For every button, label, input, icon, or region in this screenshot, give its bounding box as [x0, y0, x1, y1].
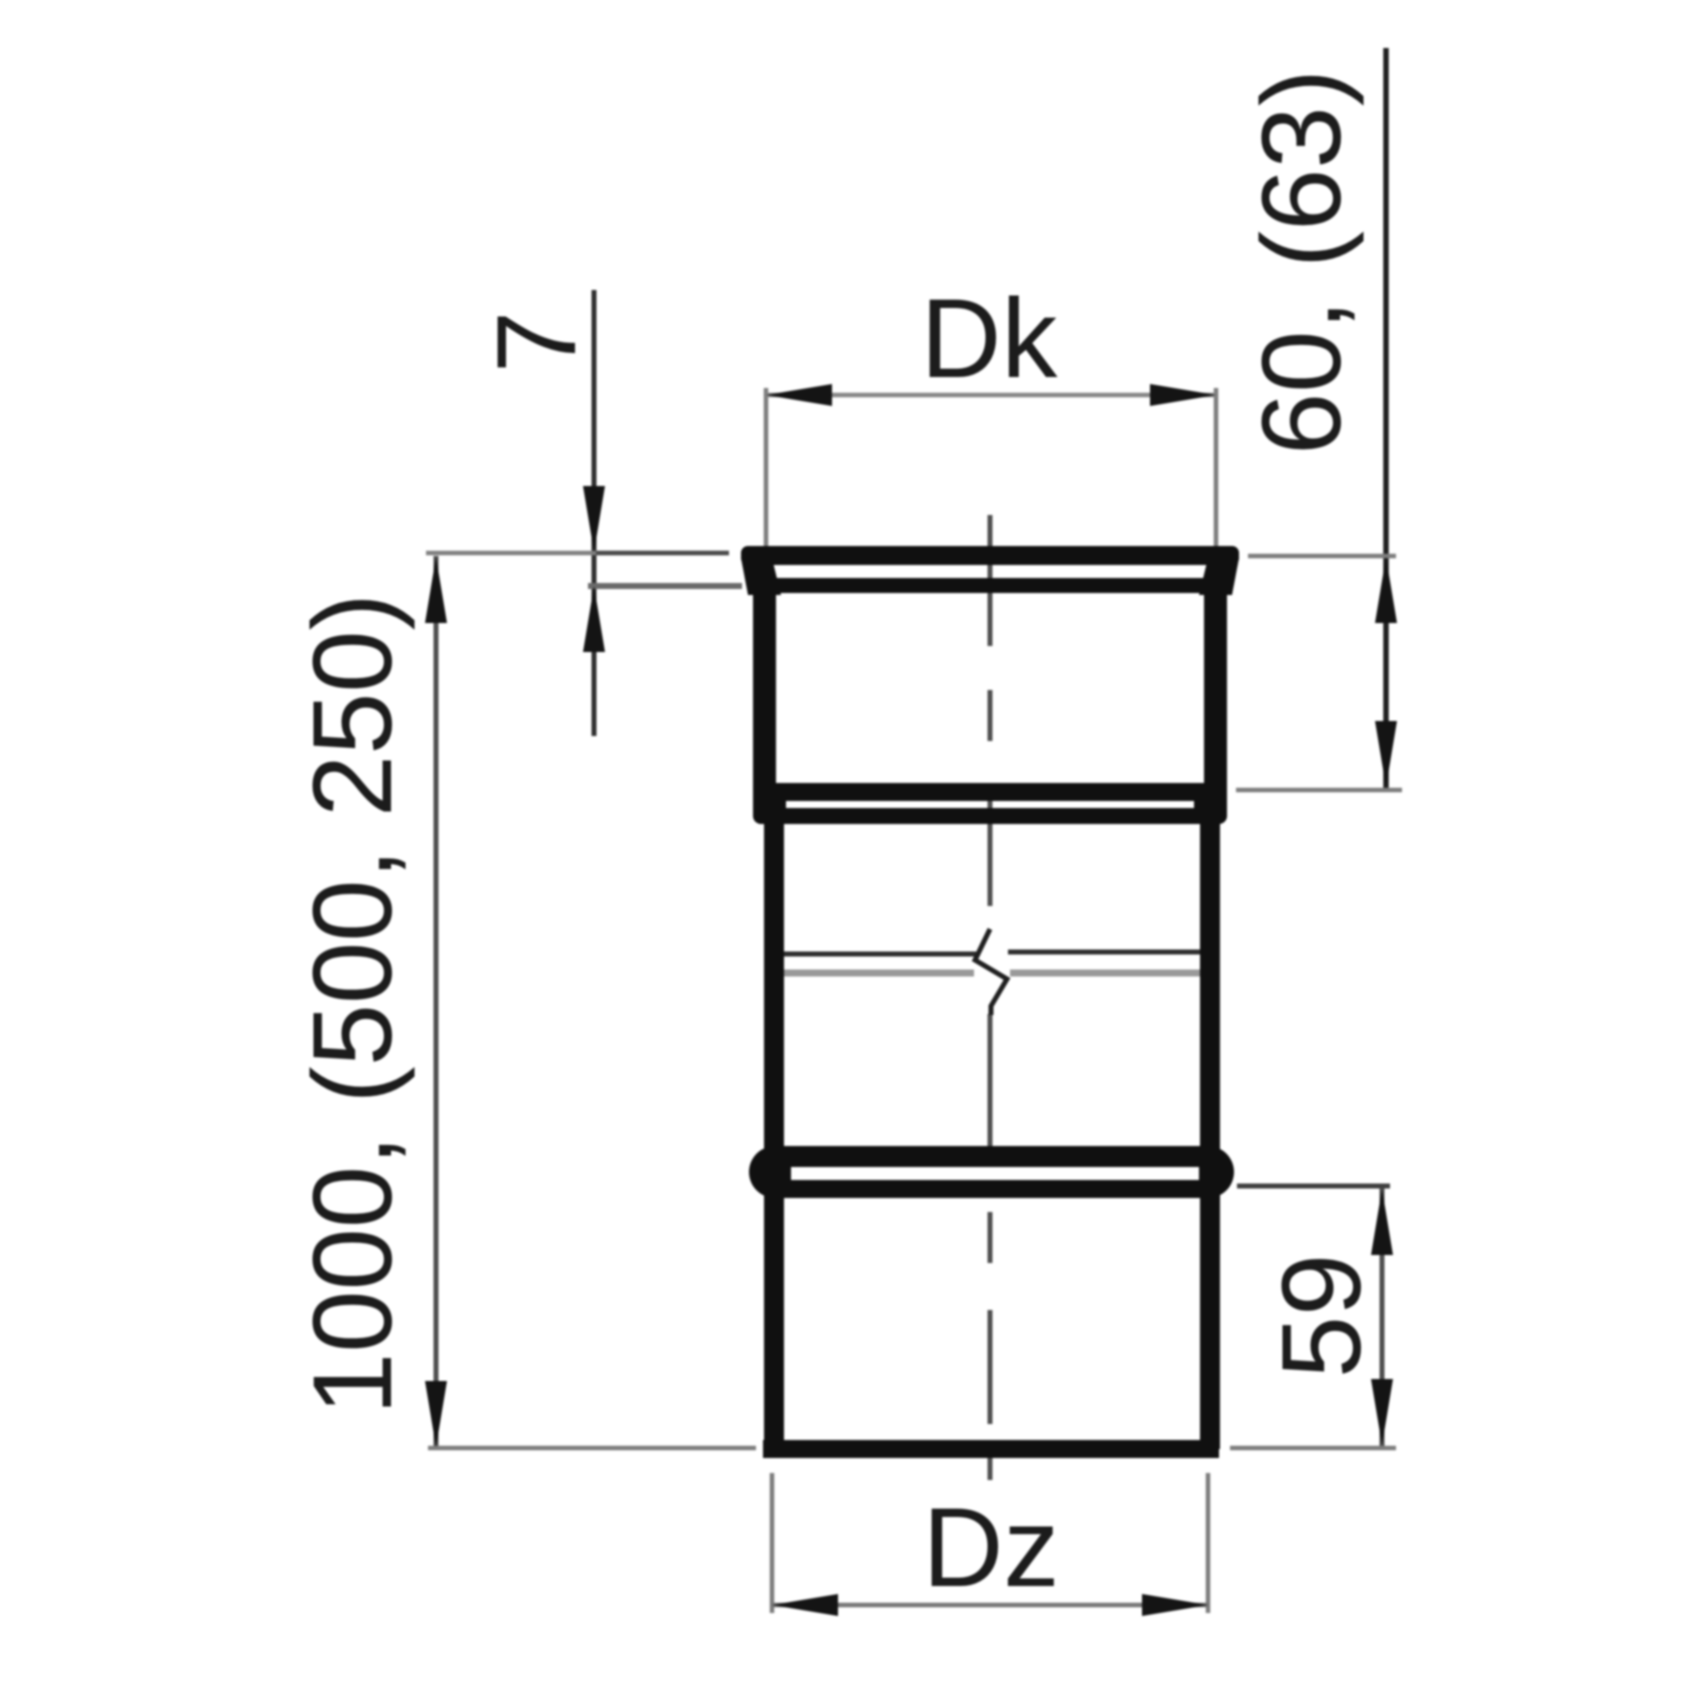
svg-text:60, (63): 60, (63)	[1239, 69, 1364, 455]
svg-text:Dk: Dk	[921, 276, 1059, 401]
svg-text:7: 7	[474, 311, 599, 373]
svg-text:Dz: Dz	[923, 1485, 1060, 1610]
svg-text:59: 59	[1259, 1254, 1384, 1379]
svg-text:1000, (500, 250): 1000, (500, 250)	[290, 593, 415, 1415]
